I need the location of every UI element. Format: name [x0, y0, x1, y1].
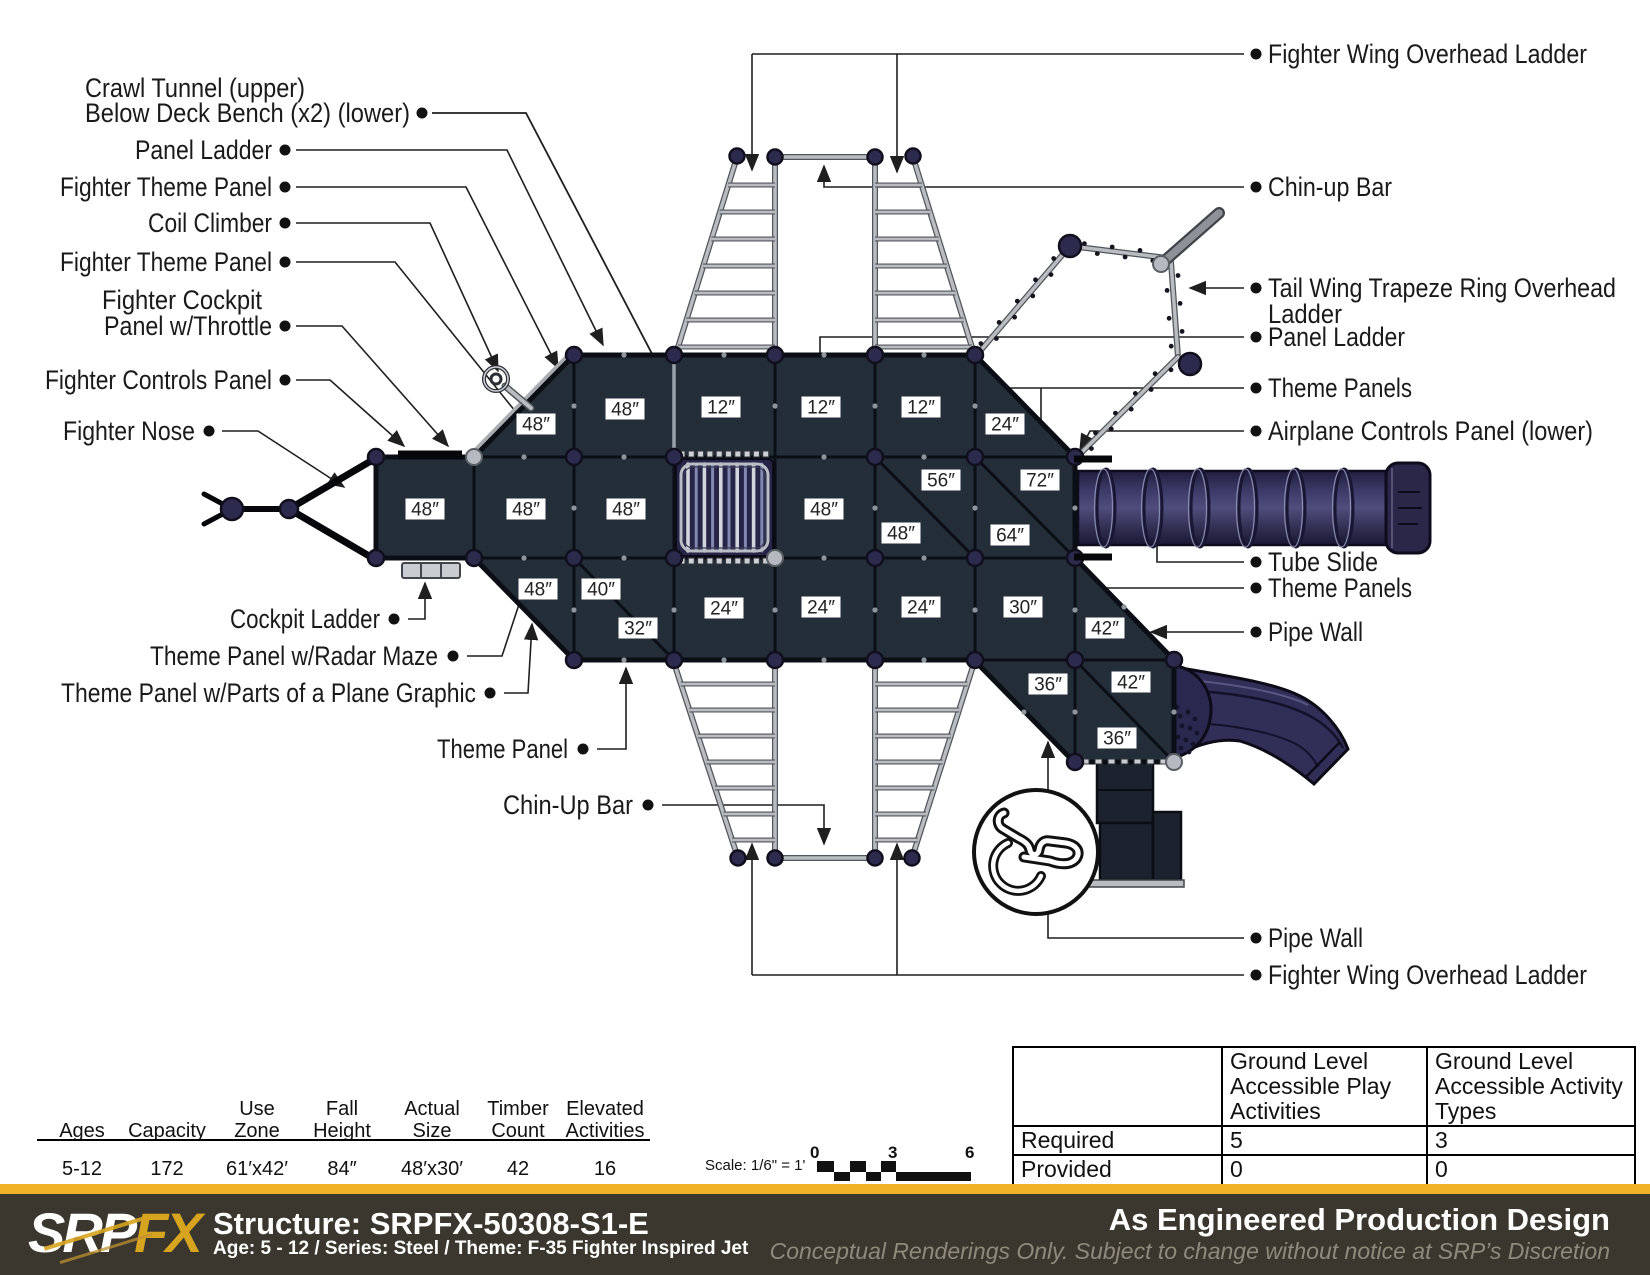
- svg-text:48″: 48″: [611, 400, 639, 421]
- svg-text:42″: 42″: [1117, 673, 1145, 694]
- svg-text:36″: 36″: [1034, 675, 1062, 696]
- svg-text:Pipe Wall: Pipe Wall: [1268, 617, 1363, 647]
- svg-text:24″: 24″: [710, 599, 738, 620]
- svg-text:24″: 24″: [907, 598, 935, 619]
- svg-text:Theme Panel w/Parts of a Plane: Theme Panel w/Parts of a Plane Graphic: [61, 678, 476, 708]
- svg-text:Panel Ladder: Panel Ladder: [135, 135, 272, 165]
- svg-text:Chin-Up Bar: Chin-Up Bar: [503, 790, 633, 820]
- svg-text:Panel w/Throttle: Panel w/Throttle: [104, 311, 272, 341]
- svg-text:Theme Panel: Theme Panel: [437, 734, 568, 764]
- svg-text:Cockpit Ladder: Cockpit Ladder: [230, 604, 380, 634]
- svg-text:Fighter Nose: Fighter Nose: [63, 416, 195, 446]
- svg-text:48″: 48″: [411, 500, 439, 521]
- svg-text:12″: 12″: [807, 398, 835, 419]
- svg-text:48″: 48″: [524, 580, 552, 601]
- svg-text:Theme Panels: Theme Panels: [1268, 373, 1412, 403]
- svg-text:Theme Panels: Theme Panels: [1268, 573, 1412, 603]
- svg-text:Airplane Controls Panel (lower: Airplane Controls Panel (lower): [1268, 416, 1593, 446]
- svg-text:48″: 48″: [512, 500, 540, 521]
- svg-text:Chin-up Bar: Chin-up Bar: [1268, 172, 1392, 202]
- svg-text:48″: 48″: [810, 500, 838, 521]
- svg-text:Below Deck Bench (x2) (lower): Below Deck Bench (x2) (lower): [85, 98, 410, 128]
- svg-text:Coil Climber: Coil Climber: [148, 208, 272, 238]
- svg-text:30″: 30″: [1009, 598, 1037, 619]
- svg-text:48″: 48″: [612, 500, 640, 521]
- svg-text:48″: 48″: [522, 415, 550, 436]
- svg-text:Fighter Theme Panel: Fighter Theme Panel: [60, 172, 272, 202]
- svg-text:42″: 42″: [1091, 619, 1119, 640]
- svg-text:Panel Ladder: Panel Ladder: [1268, 322, 1405, 352]
- svg-text:Theme Panel w/Radar Maze: Theme Panel w/Radar Maze: [150, 641, 438, 671]
- svg-text:24″: 24″: [991, 415, 1019, 436]
- svg-text:Fighter Controls Panel: Fighter Controls Panel: [45, 365, 272, 395]
- svg-text:12″: 12″: [707, 398, 735, 419]
- svg-text:Fighter Wing Overhead Ladder: Fighter Wing Overhead Ladder: [1268, 39, 1587, 69]
- svg-text:Fighter Theme Panel: Fighter Theme Panel: [60, 247, 272, 277]
- svg-text:Pipe Wall: Pipe Wall: [1268, 923, 1363, 953]
- svg-text:64″: 64″: [996, 526, 1024, 547]
- svg-text:48″: 48″: [887, 524, 915, 545]
- svg-text:24″: 24″: [807, 598, 835, 619]
- svg-text:32″: 32″: [624, 619, 652, 640]
- svg-text:40″: 40″: [587, 580, 615, 601]
- svg-text:36″: 36″: [1103, 729, 1131, 750]
- svg-text:72″: 72″: [1026, 471, 1054, 492]
- svg-text:12″: 12″: [907, 398, 935, 419]
- svg-text:56″: 56″: [927, 471, 955, 492]
- svg-text:Fighter Wing Overhead Ladder: Fighter Wing Overhead Ladder: [1268, 960, 1587, 990]
